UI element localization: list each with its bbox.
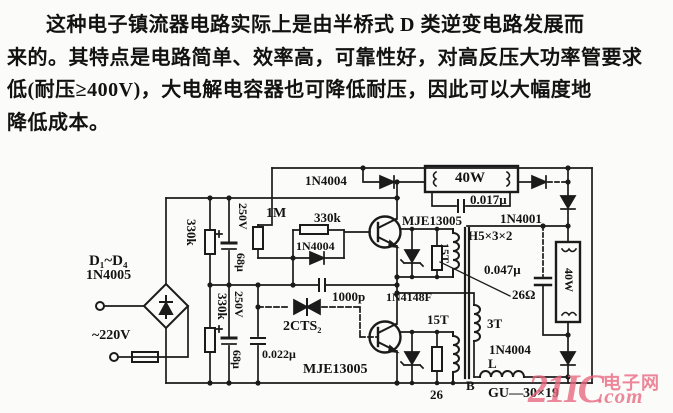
- label-transistor-q2: MJE13005: [303, 363, 368, 377]
- label-winding-3t: 3T: [487, 317, 502, 330]
- label-r330k-top: 330k: [185, 219, 198, 246]
- label-diode-1n4001: 1N4001: [500, 212, 542, 225]
- label-core-b: B: [466, 379, 475, 392]
- diode-1n4004-top: [363, 168, 425, 188]
- resistor-330k-mid: [293, 225, 344, 234]
- label-diode-top: 1N4004: [305, 174, 347, 187]
- label-lamp-h: 40W: [455, 171, 485, 186]
- label-r330k-mid: 330k: [314, 211, 341, 224]
- label-diac: 2CTS₂: [283, 320, 321, 334]
- capacitor-022u: [251, 285, 265, 383]
- label-r330k-bottom: 330k: [216, 293, 229, 320]
- label-transistor-q1: MJE13005: [402, 214, 462, 227]
- transistor-q2: [370, 322, 401, 384]
- label-c250v-bottom: 250V: [233, 291, 245, 318]
- capacitor-68u-top: [216, 198, 236, 285]
- scanned-page: 这种电子镇流器电路实际上是由半桥式 D 类逆变电路发展而 来的。其特点是电路简单…: [0, 0, 673, 413]
- label-core-size: H5×3×2: [468, 229, 512, 242]
- label-cap-1000p: 1000p: [332, 290, 365, 303]
- ballast-circuit-diagram: [0, 0, 673, 413]
- label-winding-15t-bottom: 15T: [427, 313, 449, 326]
- label-r26ohm: 26Ω: [512, 288, 535, 301]
- resistor-1m: [253, 225, 263, 258]
- resistor-330k-bottom: [205, 285, 215, 383]
- label-c68u-bottom: 68μ: [231, 350, 243, 369]
- label-diode-output: 1N4004: [489, 343, 531, 356]
- diode-right-of-lamp: [518, 176, 568, 188]
- label-bridge-part: 1N4005: [86, 269, 131, 283]
- diode-1n4001: [561, 168, 575, 242]
- label-cap-017: 0.017μ: [470, 193, 507, 206]
- label-c68u-top: 68μ: [235, 253, 247, 272]
- label-inductor-l: L: [488, 357, 497, 370]
- bridge-rectifier: [144, 284, 188, 328]
- label-r26-bottom: 26: [430, 388, 443, 401]
- watermark-logo: 21IC: [528, 365, 602, 412]
- label-cap-022: 0.022μ: [262, 348, 296, 360]
- diode-1n4004-mid: [258, 252, 344, 264]
- label-bridge-name: D₁~D₄: [89, 254, 127, 269]
- q2-base-network: [400, 332, 459, 383]
- label-diode-1n4148f: 1N4148F: [386, 291, 432, 303]
- transformer-core: [465, 228, 469, 378]
- label-r1m: 1M: [266, 207, 286, 221]
- capacitor-1000p: [210, 279, 397, 291]
- label-cap-047: 0.047μ: [484, 263, 521, 276]
- resistor-330k-top: [205, 198, 215, 285]
- label-c250v-top: 250V: [237, 203, 249, 230]
- label-winding-15t-top: 15T: [439, 243, 451, 263]
- label-diode-mid: 1N4004: [296, 240, 335, 252]
- label-mains-voltage: ~220V: [92, 329, 130, 343]
- transistor-q1: [370, 182, 401, 248]
- watermark-domain: .com: [598, 384, 643, 409]
- label-lamp-v: 40W: [563, 268, 575, 292]
